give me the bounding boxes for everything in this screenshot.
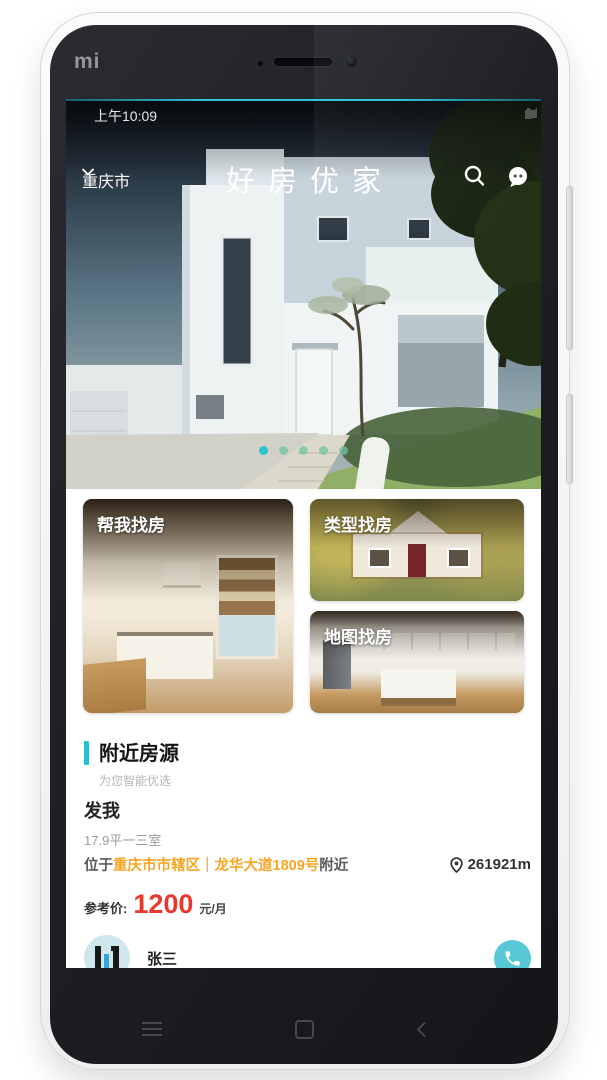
nearby-section-header: 附近房源 为您智能优选 bbox=[84, 737, 179, 789]
quick-actions: 帮我找房 类型找房 bbox=[83, 499, 524, 713]
quick-action-by-map[interactable]: 地图找房 bbox=[310, 611, 524, 713]
carousel-dots bbox=[66, 446, 541, 455]
menu-button[interactable] bbox=[132, 1016, 172, 1042]
carousel-dot[interactable] bbox=[319, 446, 328, 455]
proximity-sensor-icon bbox=[258, 61, 263, 66]
carousel-dot[interactable] bbox=[279, 446, 288, 455]
location-highlight: 重庆市市辖区｜龙华大道1809号 bbox=[113, 854, 319, 875]
listing-title[interactable]: 发我 bbox=[84, 797, 120, 823]
call-button[interactable] bbox=[494, 940, 531, 969]
phone-icon bbox=[503, 949, 522, 968]
message-icon bbox=[505, 164, 531, 190]
avatar bbox=[84, 935, 130, 968]
carousel-dot[interactable] bbox=[339, 446, 348, 455]
distance-badge: 261921m bbox=[449, 856, 531, 873]
carousel-dot[interactable] bbox=[259, 446, 268, 455]
back-button[interactable] bbox=[404, 1016, 444, 1042]
message-button[interactable] bbox=[505, 164, 533, 192]
agent-logo-icon bbox=[95, 946, 101, 968]
carousel-dot[interactable] bbox=[299, 446, 308, 455]
status-time: 上午10:09 bbox=[94, 106, 157, 126]
search-icon bbox=[463, 164, 487, 188]
speaker-grille bbox=[274, 58, 332, 66]
front-camera bbox=[346, 56, 357, 67]
quick-action-help-find[interactable]: 帮我找房 bbox=[83, 499, 293, 713]
accent-bar bbox=[84, 741, 89, 765]
volume-button[interactable] bbox=[566, 186, 573, 350]
search-button[interactable] bbox=[463, 164, 491, 192]
screen: 上午10:09 重庆市 bbox=[66, 99, 541, 968]
hero-carousel[interactable]: 上午10:09 重庆市 bbox=[66, 99, 541, 489]
quick-actions-column: 类型找房 地图找房 bbox=[310, 499, 524, 713]
price-value: 1200 bbox=[133, 891, 193, 918]
phone-bezel: mi bbox=[50, 25, 558, 1064]
hero-header: 重庆市 好房优家 bbox=[66, 157, 541, 201]
listing-location-row: 位于重庆市市辖区｜龙华大道1809号附近 261921m bbox=[84, 854, 531, 875]
home-square-icon bbox=[295, 1020, 314, 1039]
price-row: 参考价: 1200 元/月 bbox=[84, 891, 227, 918]
section-title: 附近房源 bbox=[99, 737, 179, 766]
android-nav-bar bbox=[50, 1016, 558, 1042]
back-chevron-icon bbox=[416, 1021, 432, 1037]
price-unit: 元/月 bbox=[199, 900, 226, 917]
location-suffix: 附近 bbox=[319, 854, 348, 875]
hamburger-menu-icon bbox=[142, 1028, 162, 1030]
status-bar: 上午10:09 bbox=[66, 99, 541, 129]
card-label: 地图找房 bbox=[324, 623, 392, 648]
section-subtitle: 为您智能优选 bbox=[99, 772, 179, 789]
phone-frame: mi bbox=[40, 12, 570, 1070]
agent-name: 张三 bbox=[147, 948, 177, 969]
location-prefix: 位于 bbox=[84, 854, 113, 875]
listing-spec: 17.9平一三室 bbox=[84, 830, 161, 849]
quick-action-by-type[interactable]: 类型找房 bbox=[310, 499, 524, 601]
power-button[interactable] bbox=[566, 394, 573, 484]
card-label: 帮我找房 bbox=[97, 511, 165, 536]
home-button[interactable] bbox=[284, 1016, 324, 1042]
mi-logo: mi bbox=[74, 50, 101, 74]
map-pin-icon bbox=[449, 857, 464, 873]
distance-value: 261921m bbox=[468, 856, 531, 873]
card-label: 类型找房 bbox=[324, 511, 392, 536]
agent-row: 张三 bbox=[84, 935, 531, 968]
price-label: 参考价: bbox=[84, 898, 127, 917]
battery-icon bbox=[525, 108, 532, 119]
screenshot-stage: mi bbox=[0, 0, 607, 1080]
